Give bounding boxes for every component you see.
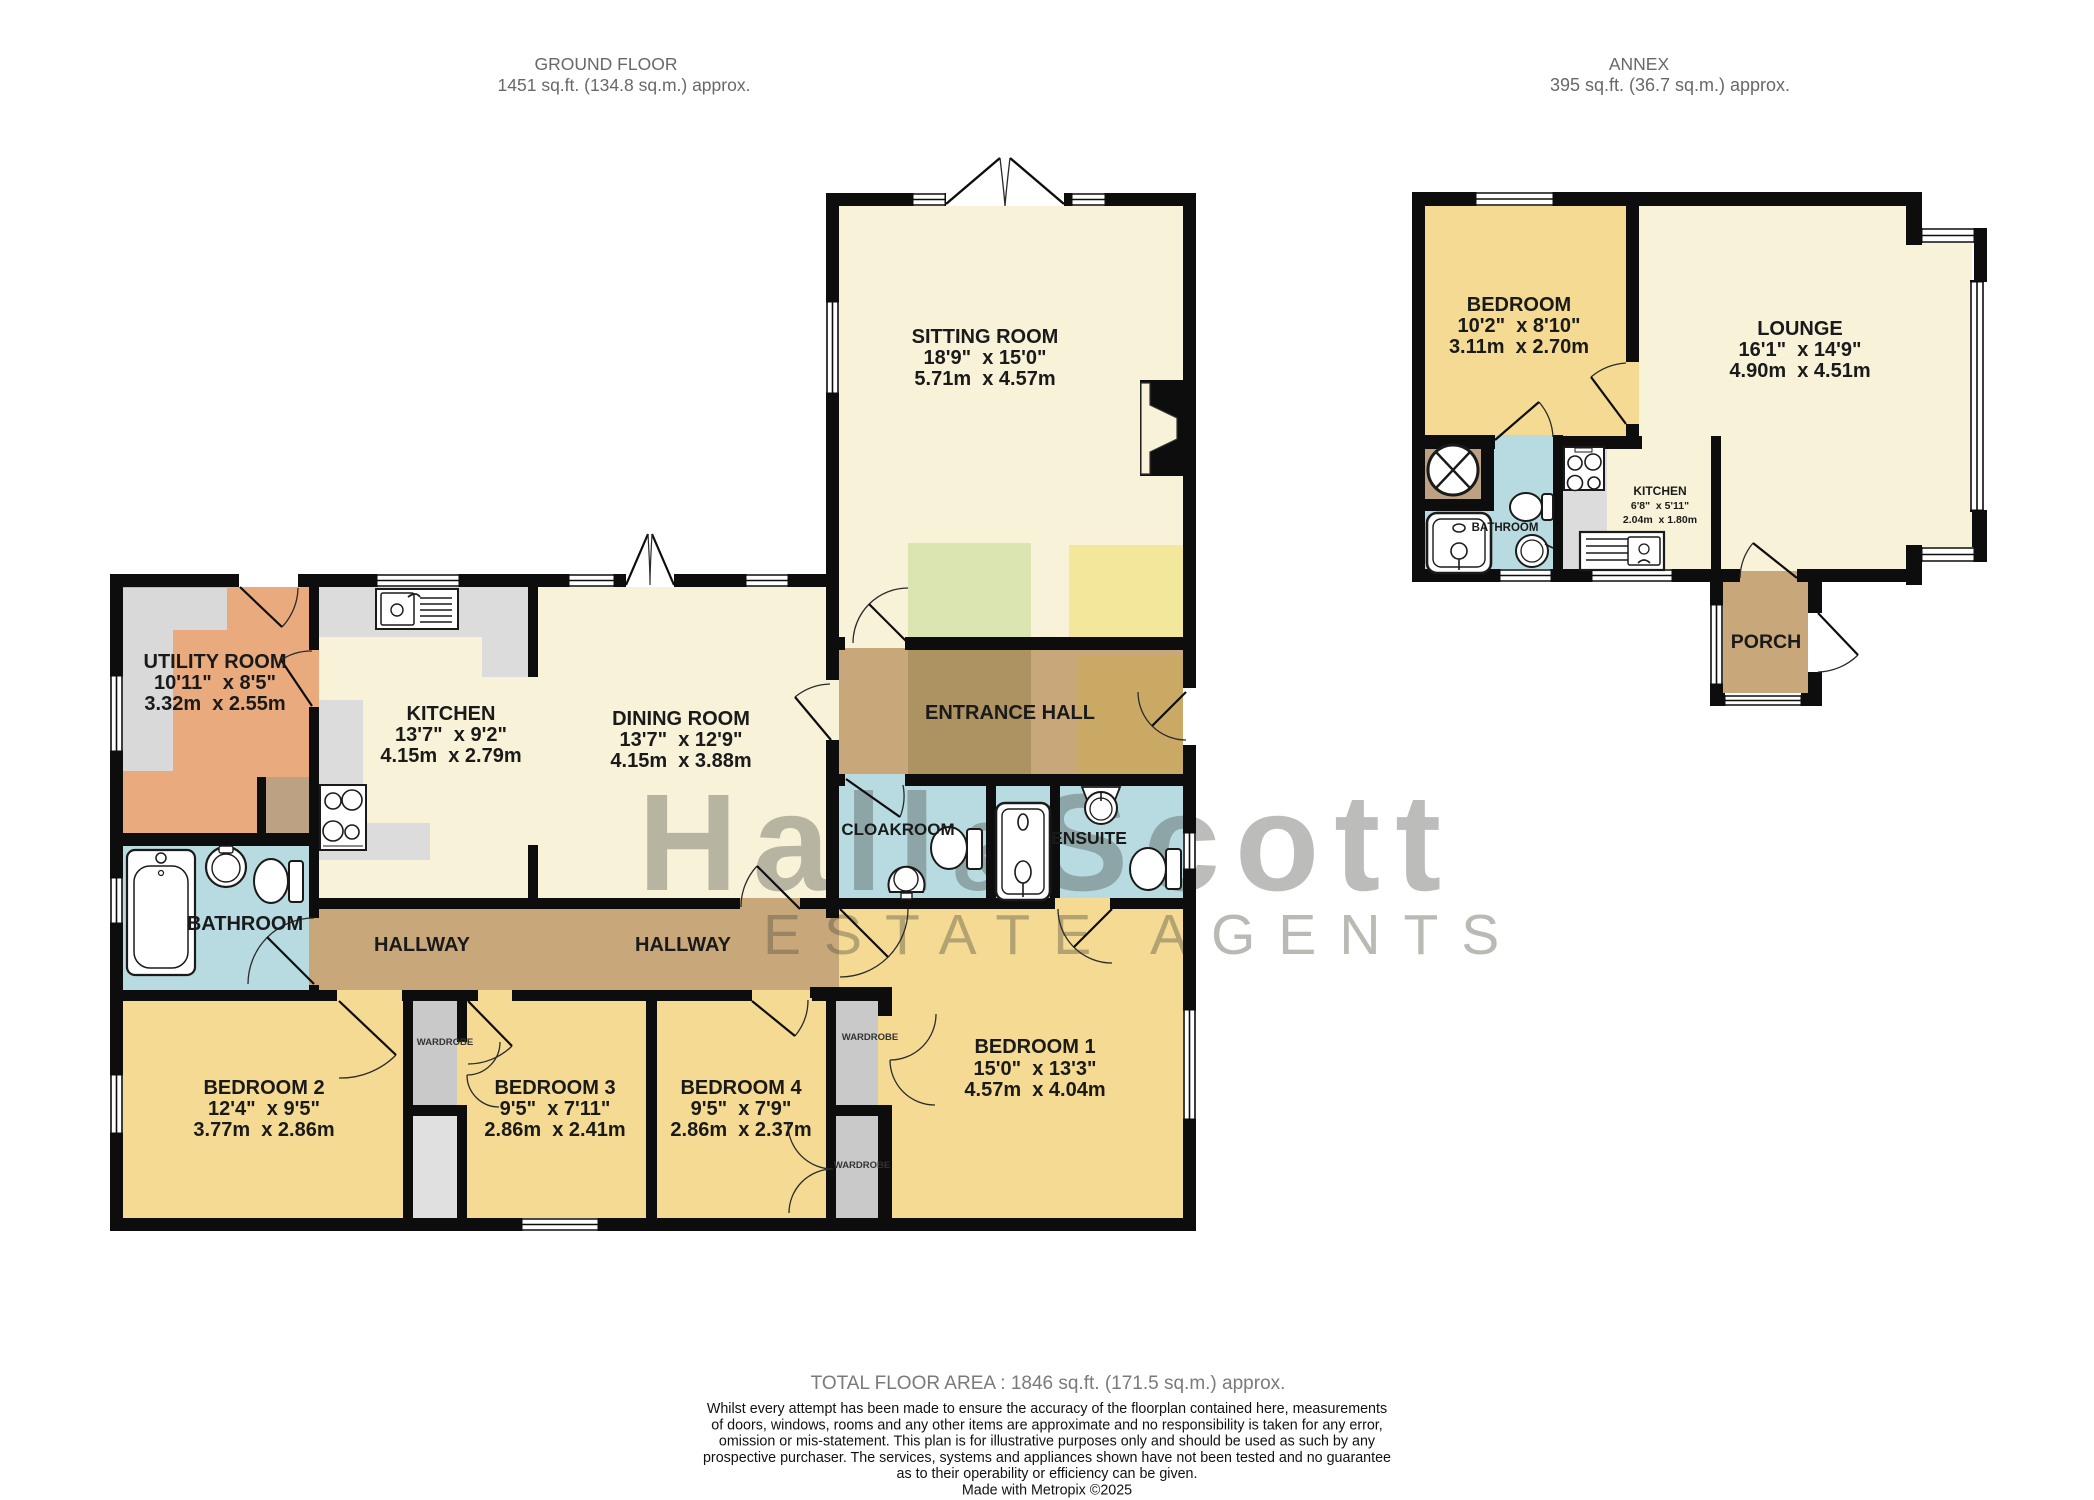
svg-text:2.86m x 2.37m: 2.86m x 2.37m bbox=[670, 1119, 811, 1141]
svg-text:BEDROOM 3: BEDROOM 3 bbox=[494, 1077, 615, 1099]
svg-text:ANNEX: ANNEX bbox=[1609, 54, 1670, 74]
svg-text:PORCH: PORCH bbox=[1731, 631, 1801, 653]
svg-text:KITCHEN: KITCHEN bbox=[407, 703, 496, 725]
svg-text:LOUNGE: LOUNGE bbox=[1757, 318, 1843, 340]
svg-text:as to their operability or eff: as to their operability or efficiency ca… bbox=[897, 1466, 1198, 1482]
svg-text:TOTAL FLOOR AREA : 1846 sq.ft.: TOTAL FLOOR AREA : 1846 sq.ft. (171.5 sq… bbox=[811, 1373, 1286, 1394]
svg-text:omission or mis-statement. Thi: omission or mis-statement. This plan is … bbox=[719, 1434, 1376, 1450]
svg-text:DINING ROOM: DINING ROOM bbox=[612, 708, 750, 730]
svg-text:ENTRANCE HALL: ENTRANCE HALL bbox=[925, 702, 1095, 724]
svg-text:WARDROBE: WARDROBE bbox=[834, 1160, 890, 1171]
svg-text:15'0" x 13'3": 15'0" x 13'3" bbox=[973, 1058, 1096, 1080]
svg-text:of doors, windows, rooms and a: of doors, windows, rooms and any other i… bbox=[711, 1417, 1383, 1433]
svg-text:395 sq.ft. (36.7 sq.m.) approx: 395 sq.ft. (36.7 sq.m.) approx. bbox=[1550, 75, 1790, 95]
svg-text:Whilst every attempt has been: Whilst every attempt has been made to en… bbox=[707, 1401, 1387, 1417]
svg-text:9'5" x 7'9": 9'5" x 7'9" bbox=[691, 1098, 792, 1120]
svg-text:UTILITY ROOM: UTILITY ROOM bbox=[144, 651, 287, 673]
svg-text:GROUND FLOOR: GROUND FLOOR bbox=[535, 54, 678, 74]
svg-text:KITCHEN: KITCHEN bbox=[1633, 484, 1686, 498]
svg-text:SITTING ROOM: SITTING ROOM bbox=[912, 326, 1059, 348]
svg-text:10'11" x 8'5": 10'11" x 8'5" bbox=[154, 672, 276, 694]
svg-text:BEDROOM: BEDROOM bbox=[1467, 294, 1571, 316]
svg-text:BEDROOM 4: BEDROOM 4 bbox=[680, 1077, 802, 1099]
svg-text:3.32m x 2.55m: 3.32m x 2.55m bbox=[144, 693, 285, 715]
svg-text:HALLWAY: HALLWAY bbox=[635, 934, 732, 956]
svg-text:2.04m x 1.80m: 2.04m x 1.80m bbox=[1623, 514, 1697, 526]
svg-text:13'7" x 12'9": 13'7" x 12'9" bbox=[619, 729, 742, 751]
svg-text:9'5" x 7'11": 9'5" x 7'11" bbox=[500, 1098, 611, 1120]
svg-text:4.15m x 2.79m: 4.15m x 2.79m bbox=[380, 745, 521, 767]
svg-text:Made with Metropix ©2025: Made with Metropix ©2025 bbox=[962, 1483, 1132, 1499]
svg-text:BEDROOM 1: BEDROOM 1 bbox=[974, 1036, 1095, 1058]
svg-text:ENSUITE: ENSUITE bbox=[1051, 828, 1127, 848]
svg-text:16'1" x 14'9": 16'1" x 14'9" bbox=[1738, 339, 1861, 361]
svg-text:BATHROOM: BATHROOM bbox=[1472, 522, 1539, 534]
svg-text:13'7" x 9'2": 13'7" x 9'2" bbox=[395, 724, 507, 746]
svg-text:4.90m x 4.51m: 4.90m x 4.51m bbox=[1729, 360, 1870, 382]
svg-text:6'8" x 5'11": 6'8" x 5'11" bbox=[1631, 500, 1689, 512]
svg-text:2.86m x 2.41m: 2.86m x 2.41m bbox=[484, 1119, 625, 1141]
svg-text:HALLWAY: HALLWAY bbox=[374, 934, 471, 956]
svg-text:BATHROOM: BATHROOM bbox=[187, 913, 303, 935]
svg-text:4.15m x 3.88m: 4.15m x 3.88m bbox=[610, 750, 751, 772]
svg-text:BEDROOM 2: BEDROOM 2 bbox=[203, 1077, 324, 1099]
svg-text:5.71m x 4.57m: 5.71m x 4.57m bbox=[914, 368, 1055, 390]
svg-text:18'9" x 15'0": 18'9" x 15'0" bbox=[923, 347, 1046, 369]
svg-text:12'4" x 9'5": 12'4" x 9'5" bbox=[208, 1098, 320, 1120]
svg-text:10'2" x 8'10": 10'2" x 8'10" bbox=[1457, 315, 1580, 337]
svg-text:prospective purchaser. The ser: prospective purchaser. The services, sys… bbox=[703, 1450, 1391, 1466]
svg-text:3.77m x 2.86m: 3.77m x 2.86m bbox=[193, 1119, 334, 1141]
svg-text:3.11m x 2.70m: 3.11m x 2.70m bbox=[1449, 336, 1589, 358]
svg-text:1451 sq.ft. (134.8 sq.m.) appr: 1451 sq.ft. (134.8 sq.m.) approx. bbox=[498, 75, 751, 95]
svg-text:WARDROBE: WARDROBE bbox=[842, 1032, 898, 1043]
svg-text:ESTATE AGENTS: ESTATE AGENTS bbox=[763, 903, 1522, 967]
svg-text:CLOAKROOM: CLOAKROOM bbox=[841, 820, 954, 839]
svg-text:WARDROBE: WARDROBE bbox=[417, 1037, 473, 1048]
svg-text:4.57m x 4.04m: 4.57m x 4.04m bbox=[964, 1079, 1105, 1101]
